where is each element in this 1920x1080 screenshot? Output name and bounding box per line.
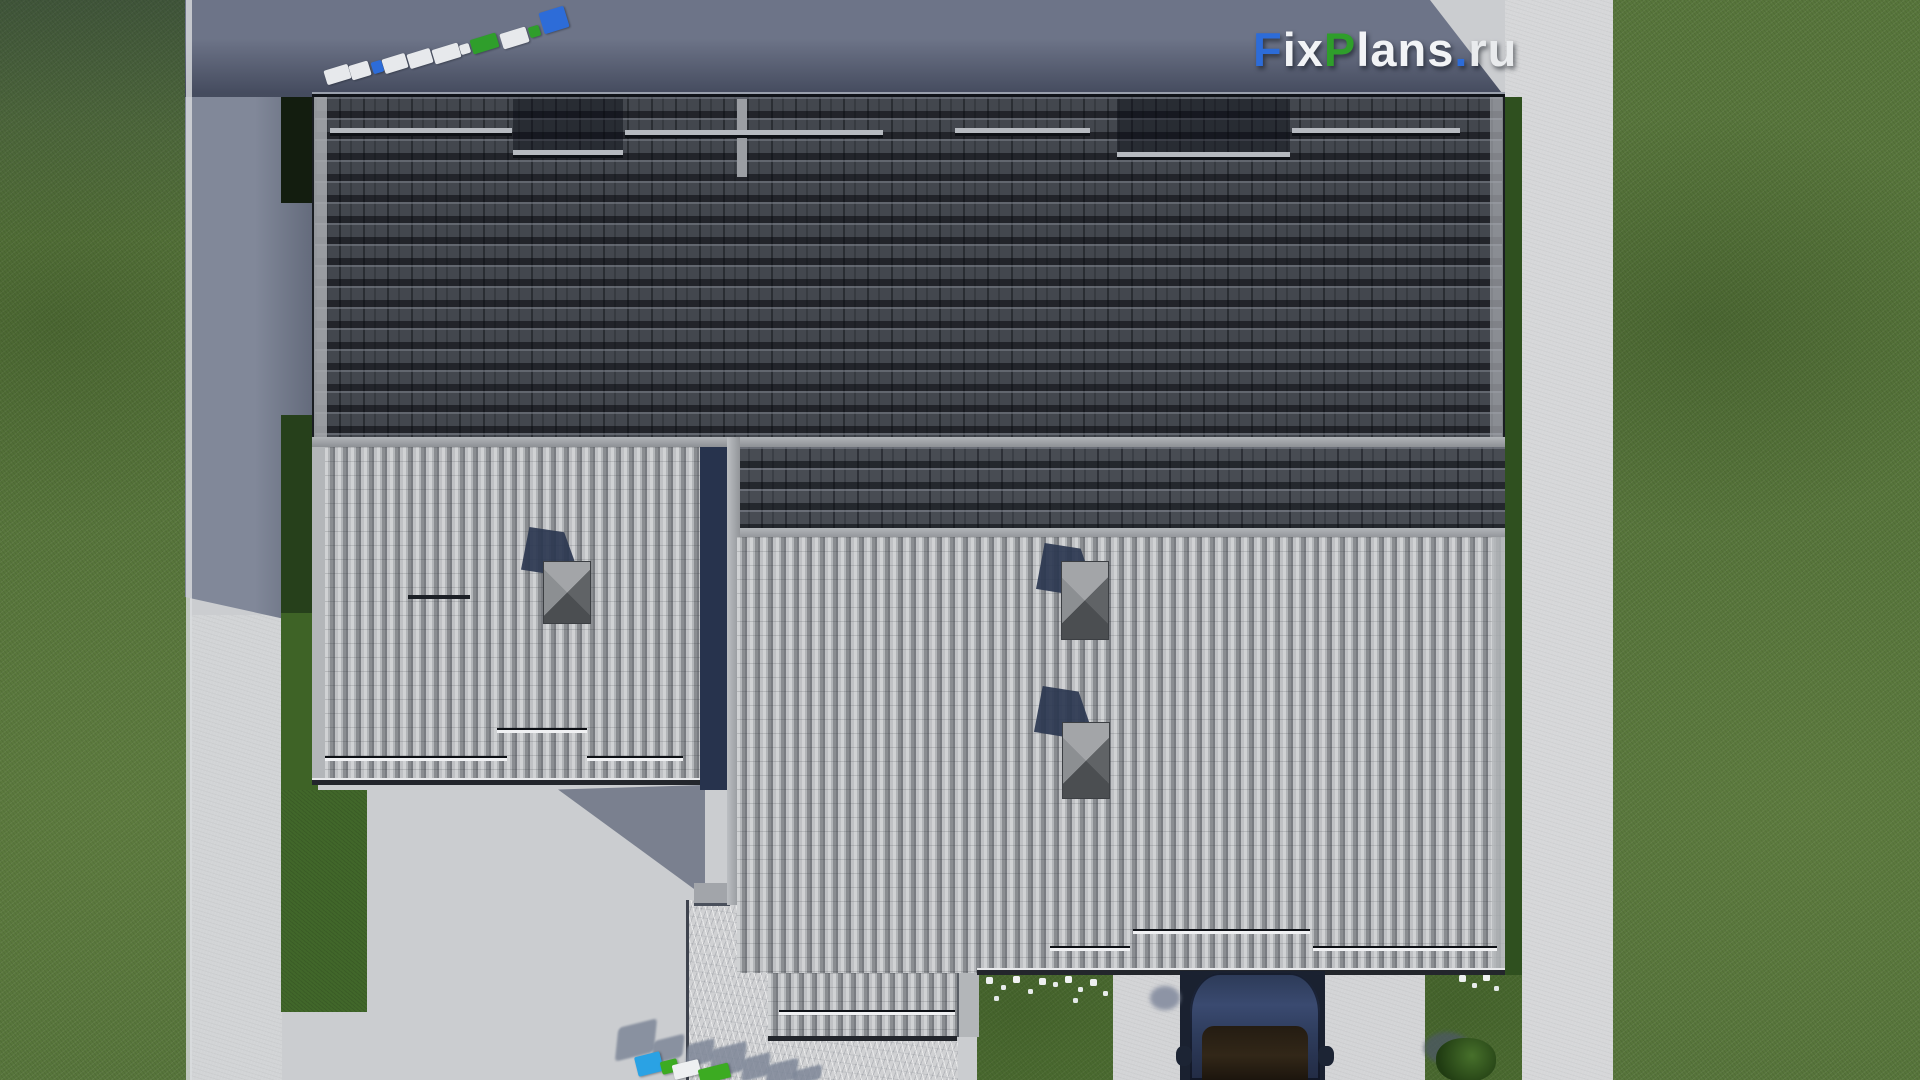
watermark-segment-ix: ix <box>1283 23 1324 76</box>
dark-roof-right-fascia <box>1490 97 1503 437</box>
watermark-segment-f: F <box>1253 23 1283 76</box>
snow-guard <box>1117 152 1290 160</box>
dark-tile-roof-lower <box>737 447 1505 528</box>
snow-guard <box>330 128 512 136</box>
right-roof-fascia <box>1492 537 1505 973</box>
roof-bump-porch <box>768 973 957 1040</box>
tower-shadow <box>558 785 705 897</box>
snow-guard <box>1050 946 1130 951</box>
dark-roof-left-fascia <box>314 97 327 437</box>
snow-guard <box>513 150 623 158</box>
car-mirror-left <box>1176 1046 1192 1066</box>
snow-guard <box>587 756 683 761</box>
car-windshield <box>1202 1026 1308 1080</box>
hedge-right-strip <box>1505 97 1522 975</box>
dark-tile-roof-upper <box>312 97 1505 437</box>
driveway <box>1325 973 1425 1080</box>
roof-vent-line <box>408 595 470 599</box>
watermark-segment-lans: lans <box>1356 23 1454 76</box>
patio-step-wall <box>694 883 730 906</box>
snow-guard <box>1133 929 1310 934</box>
roof-recess-1 <box>513 99 623 152</box>
scene-stage: FixPlans.ru <box>0 0 1920 1080</box>
flower-bed-left <box>977 975 1113 1080</box>
snow-guard <box>497 728 587 733</box>
snow-guard <box>1292 128 1460 136</box>
snow-guard <box>325 756 507 761</box>
fascia-horizontal-upper <box>312 437 1505 447</box>
tower-wall-shaded <box>700 447 727 790</box>
bush <box>1436 1038 1496 1080</box>
hedge-left-bottom <box>281 790 367 1012</box>
chimney-left-cap <box>543 561 591 624</box>
right-roof-inner-fascia <box>957 973 979 1037</box>
watermark-segment-p: P <box>1324 23 1356 76</box>
car-mirror-right <box>1318 1046 1334 1066</box>
roof-recess-2 <box>1117 99 1290 154</box>
chimney-right1-cap <box>1061 561 1109 640</box>
left-roof-fascia <box>312 447 325 783</box>
white-flowers-right <box>1458 976 1459 977</box>
grass-right-field <box>1613 0 1920 1080</box>
watermark-segment-dot: . <box>1454 23 1468 76</box>
chimney-right2-cap <box>1062 722 1110 799</box>
grass-left-shadow <box>0 0 190 240</box>
snow-guard <box>779 1010 955 1015</box>
snow-guard <box>955 128 1090 136</box>
left-pavement-path <box>190 615 282 1080</box>
watermark-segment-ru: ru <box>1468 23 1517 76</box>
bump-eave-shadow <box>768 1036 957 1041</box>
snow-guard <box>625 130 883 138</box>
snow-guard <box>1313 946 1497 951</box>
fixplans-watermark: FixPlans.ru <box>1253 22 1517 77</box>
grass-pavement-curb <box>186 0 192 1080</box>
ridge-junction <box>737 99 747 177</box>
white-flowers-left <box>983 978 984 979</box>
car-mirror-shadow <box>1150 986 1180 1010</box>
left-roof-eave-shadow <box>312 780 705 785</box>
light-metal-roof-right <box>737 537 1505 973</box>
